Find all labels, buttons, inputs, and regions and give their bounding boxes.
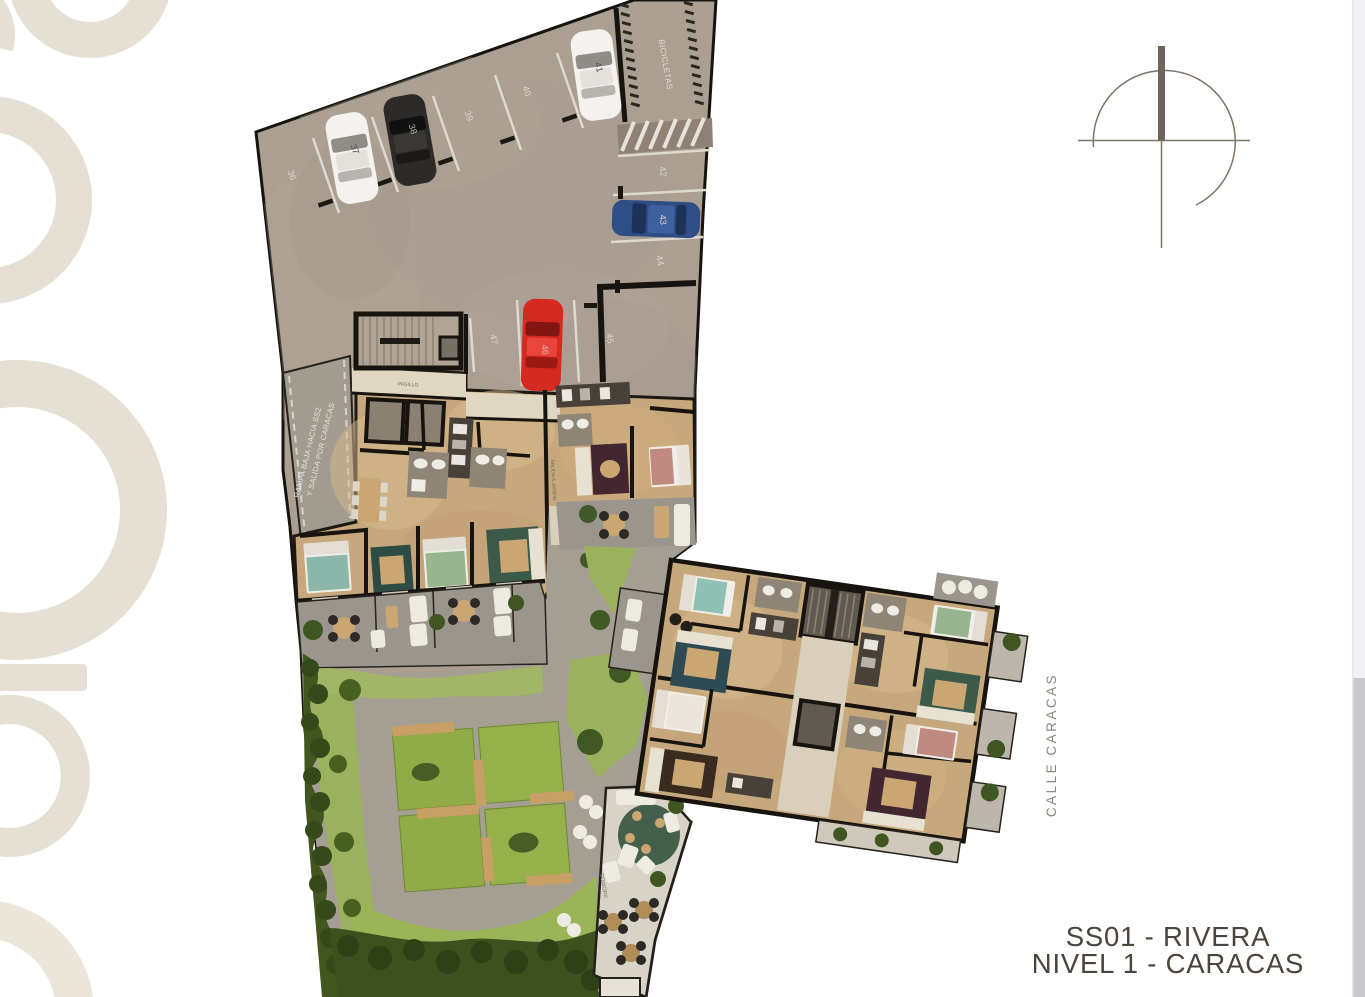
svg-text:47: 47 — [488, 334, 500, 346]
svg-text:43: 43 — [658, 214, 669, 225]
svg-text:CALLE CARACAS: CALLE CARACAS — [1044, 673, 1059, 817]
svg-text:42: 42 — [657, 166, 669, 178]
svg-text:46: 46 — [540, 344, 551, 355]
svg-text:45: 45 — [604, 333, 616, 345]
svg-text:PASILLO: PASILLO — [398, 381, 419, 388]
svg-text:44: 44 — [654, 255, 666, 267]
svg-text:NIVEL 1 - CARACAS: NIVEL 1 - CARACAS — [1032, 948, 1304, 979]
